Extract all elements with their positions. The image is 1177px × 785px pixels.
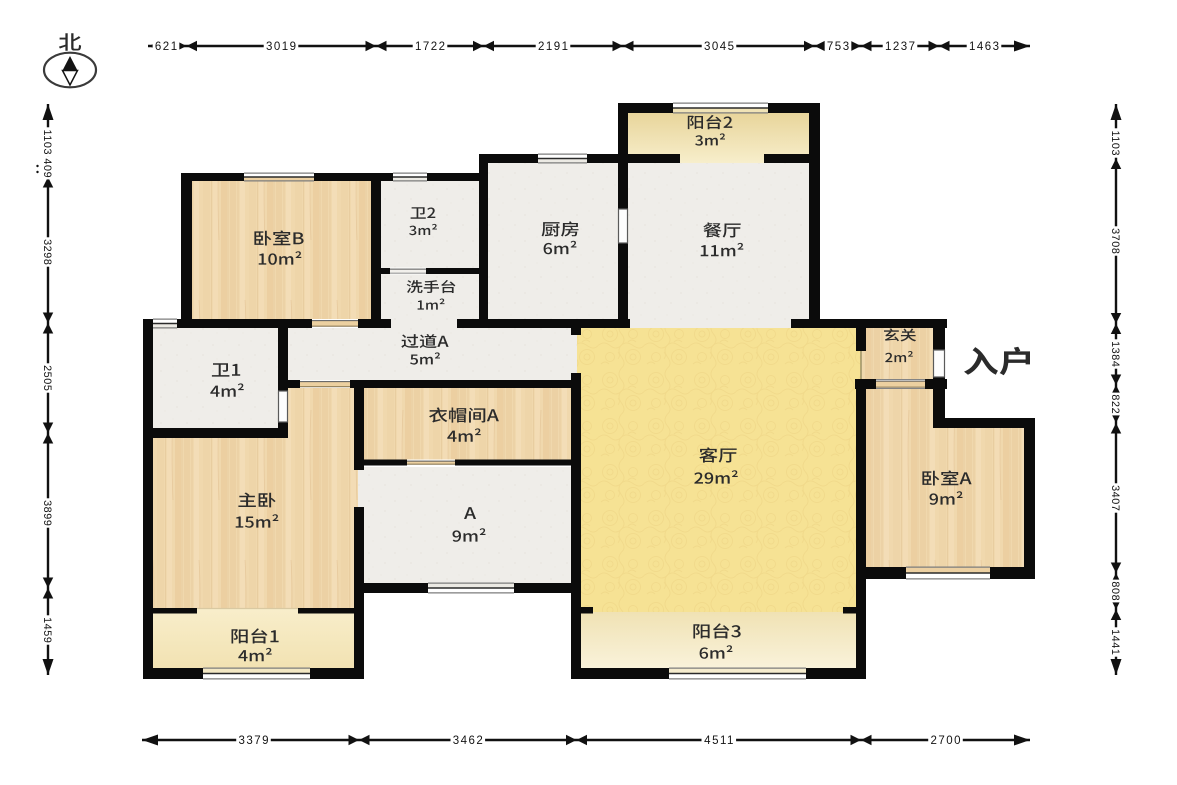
svg-text:3019: 3019 — [266, 41, 298, 53]
svg-text:3045: 3045 — [704, 41, 736, 53]
svg-text:3708: 3708 — [1109, 228, 1121, 254]
svg-text:1237: 1237 — [885, 41, 917, 53]
svg-text:1463: 1463 — [969, 41, 1001, 53]
svg-text:1459: 1459 — [41, 617, 53, 643]
svg-text:1103: 1103 — [1109, 130, 1121, 156]
svg-text:808: 808 — [1109, 581, 1121, 601]
svg-text:3407: 3407 — [1109, 485, 1121, 511]
svg-text:753: 753 — [827, 41, 851, 53]
svg-text:822: 822 — [1109, 394, 1121, 414]
svg-text:1441: 1441 — [1109, 629, 1121, 655]
svg-text:3379: 3379 — [238, 735, 270, 747]
svg-text:1384: 1384 — [1109, 341, 1121, 367]
svg-text:2191: 2191 — [538, 41, 570, 53]
svg-text:1722: 1722 — [415, 41, 447, 53]
svg-text:2700: 2700 — [930, 735, 962, 747]
svg-text:2505: 2505 — [41, 365, 53, 391]
svg-text:3298: 3298 — [41, 239, 53, 265]
svg-text:4511: 4511 — [704, 735, 735, 747]
svg-text:1103: 1103 — [41, 129, 53, 155]
svg-text:409: 409 — [41, 158, 53, 178]
svg-text:3462: 3462 — [453, 735, 485, 747]
svg-text:621: 621 — [155, 41, 179, 53]
svg-text:3899: 3899 — [41, 500, 53, 526]
